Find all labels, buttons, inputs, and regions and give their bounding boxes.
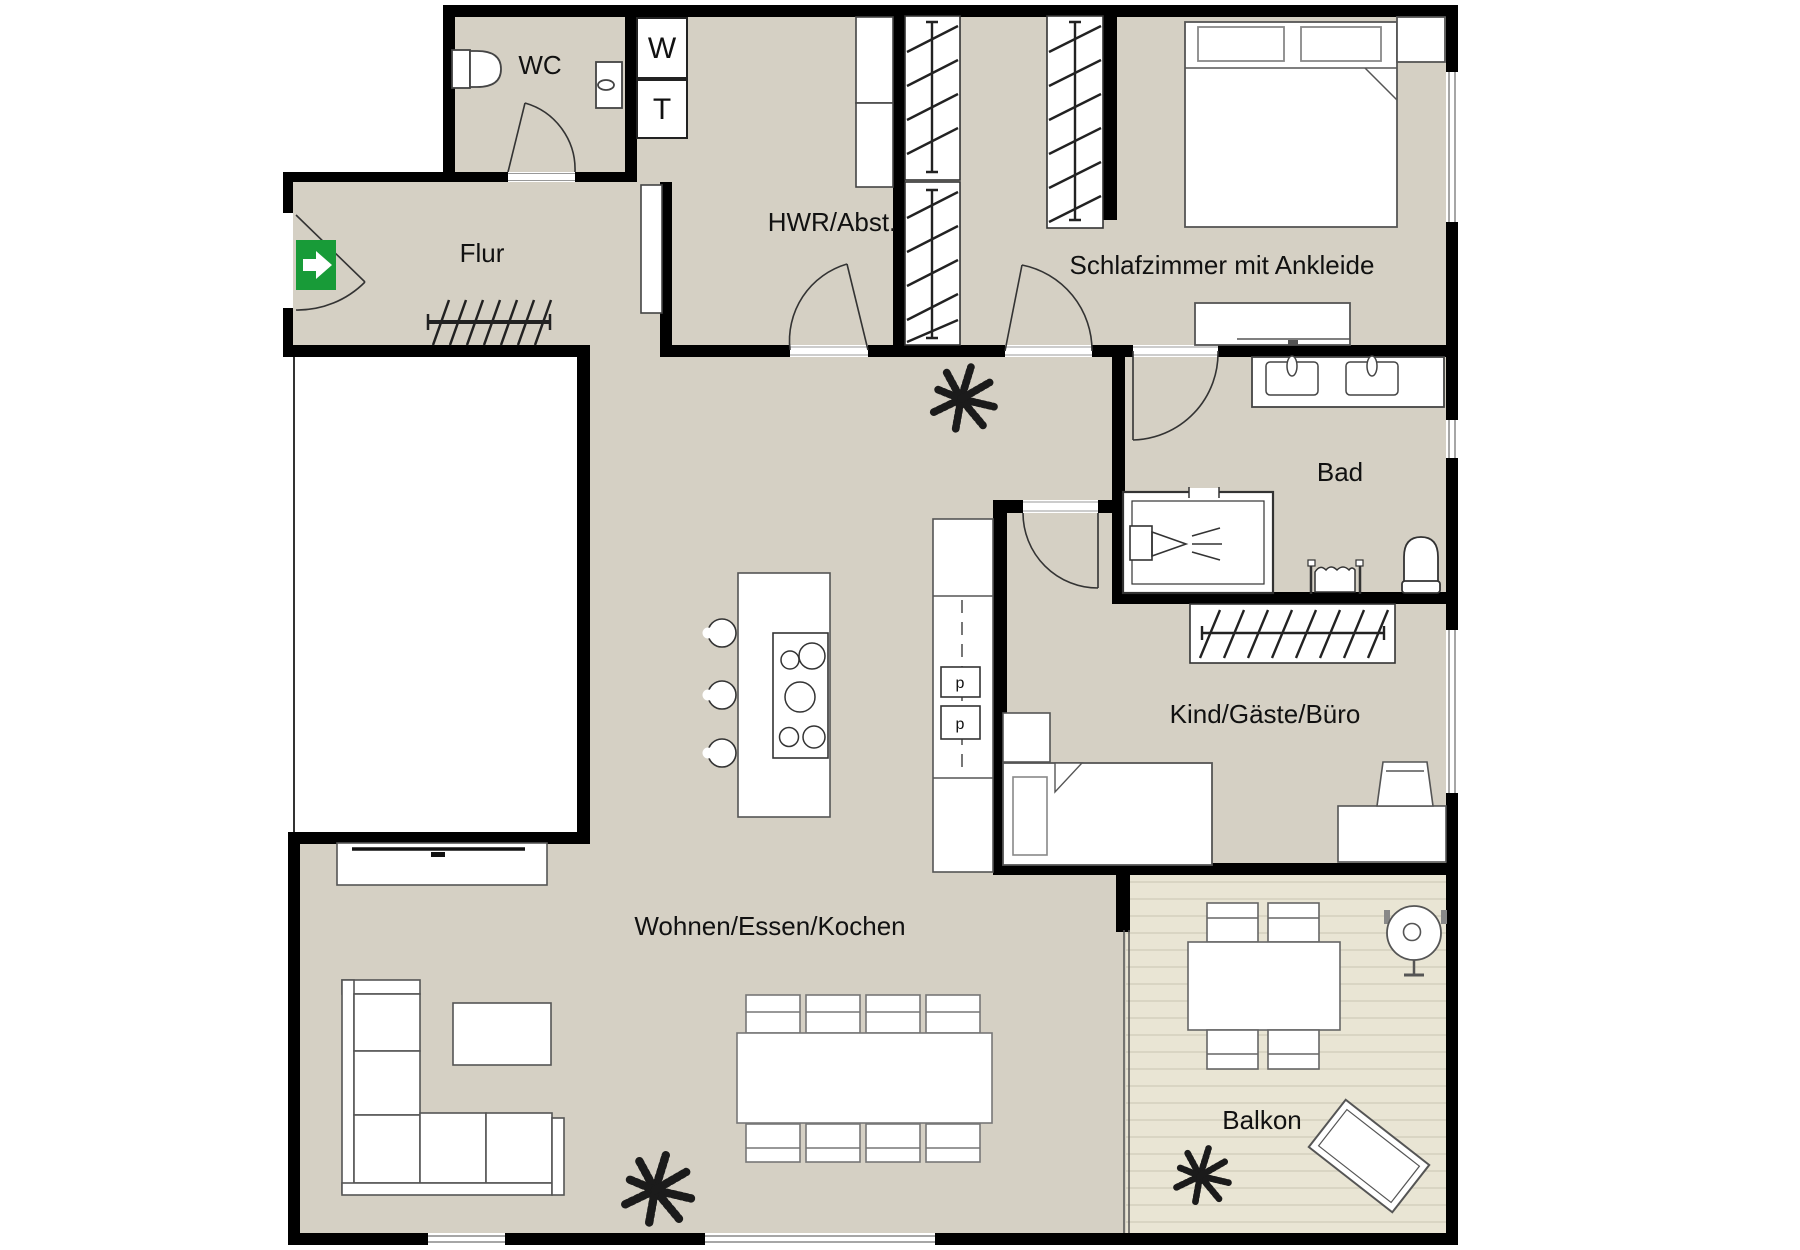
room-label-balkon: Balkon <box>1222 1105 1302 1135</box>
window-living-south-small <box>428 1233 505 1245</box>
window-bedroom-east <box>1446 72 1458 222</box>
washer-label: W <box>648 32 677 65</box>
dining-chair <box>806 995 860 1033</box>
flur-cabinet <box>641 185 662 313</box>
balcony-chair <box>1207 1030 1258 1069</box>
dining-table <box>737 1033 992 1123</box>
window-bad-east <box>1446 420 1458 458</box>
dryer-label: T <box>653 93 671 126</box>
desk <box>1338 806 1446 862</box>
dining-chair <box>866 1124 920 1162</box>
wall-kind-north-stub <box>1098 500 1112 513</box>
pillow <box>1013 777 1047 855</box>
kitchen-counter <box>933 519 993 872</box>
room-label-schlafzimmer: Schlafzimmer mit Ankleide <box>1070 250 1375 280</box>
dining-chair <box>926 995 980 1033</box>
hwr-cabinet-lower <box>856 103 893 187</box>
dresser <box>1195 303 1350 345</box>
room-label-hwr: HWR/Abst. <box>768 207 897 237</box>
opening-entrance <box>283 213 293 308</box>
room-label-bad: Bad <box>1317 457 1363 487</box>
nightstand <box>1003 713 1050 762</box>
wall-flur-top <box>283 172 445 182</box>
wardrobe-icon-kind <box>1190 604 1395 663</box>
nightstand <box>1397 17 1445 62</box>
dining-chair <box>866 995 920 1033</box>
floor-plan-page: Flur WC HWR/Abst. Schlafzimmer mit Ankle… <box>0 0 1800 1250</box>
dining-chair <box>746 995 800 1033</box>
window-kind-east <box>1446 630 1458 793</box>
room-label-wc: WC <box>518 50 561 80</box>
hwr-cabinet-upper <box>856 17 893 103</box>
desk-chair <box>1377 762 1433 806</box>
room-label-flur: Flur <box>460 238 505 268</box>
room-label-wohnen: Wohnen/Essen/Kochen <box>634 911 905 941</box>
cooktop-icon <box>773 633 828 758</box>
single-bed-icon <box>1003 763 1212 865</box>
toilet-icon <box>452 50 501 88</box>
opening-schlafzimmer <box>1005 345 1092 357</box>
appliance-label-upper: p <box>956 675 965 692</box>
wall-balcony-stub <box>1116 875 1130 932</box>
shower-icon <box>1123 487 1273 593</box>
wall-living-west <box>288 832 300 1245</box>
balcony-table <box>1188 942 1340 1030</box>
wall-spine-a <box>288 345 590 357</box>
wall-kind-north-left <box>993 500 1023 513</box>
balcony-chair <box>1207 903 1258 942</box>
pillow <box>1198 27 1284 61</box>
opening-hwr <box>790 345 868 357</box>
dining-chair <box>746 1124 800 1162</box>
room-label-kind: Kind/Gäste/Büro <box>1170 699 1361 729</box>
floor-plan-canvas: Flur WC HWR/Abst. Schlafzimmer mit Ankle… <box>0 0 1800 1250</box>
wall-spine-d <box>905 345 1005 357</box>
vanity-double-sink-icon <box>1252 356 1444 407</box>
wall-spine-b <box>672 345 790 357</box>
floor-hall-east <box>993 357 1112 500</box>
exit-arrow-icon <box>296 240 336 290</box>
pillow <box>1301 27 1381 61</box>
wall-spine-f <box>1218 345 1458 357</box>
wall-ankleide <box>1103 5 1117 220</box>
balcony-chair <box>1268 1030 1319 1069</box>
appliance-label-lower: p <box>956 716 965 733</box>
hand-sink-icon <box>596 62 622 108</box>
wall-spine-e <box>1092 345 1133 357</box>
wall-void-east <box>577 345 590 844</box>
window-living-south-large <box>705 1233 935 1245</box>
wall-wc-west <box>443 5 455 182</box>
toilet-icon-bad <box>1402 537 1440 593</box>
opening-bad <box>1133 345 1218 357</box>
coffee-table <box>453 1003 551 1065</box>
wall-wc-east <box>625 5 637 182</box>
wall-hwr-east <box>893 5 905 357</box>
balcony-chair <box>1268 903 1319 942</box>
opening-kind <box>1023 500 1098 513</box>
tv-sideboard <box>337 843 547 885</box>
opening-wc <box>508 172 575 182</box>
dining-chair <box>926 1124 980 1162</box>
dining-chair <box>806 1124 860 1162</box>
